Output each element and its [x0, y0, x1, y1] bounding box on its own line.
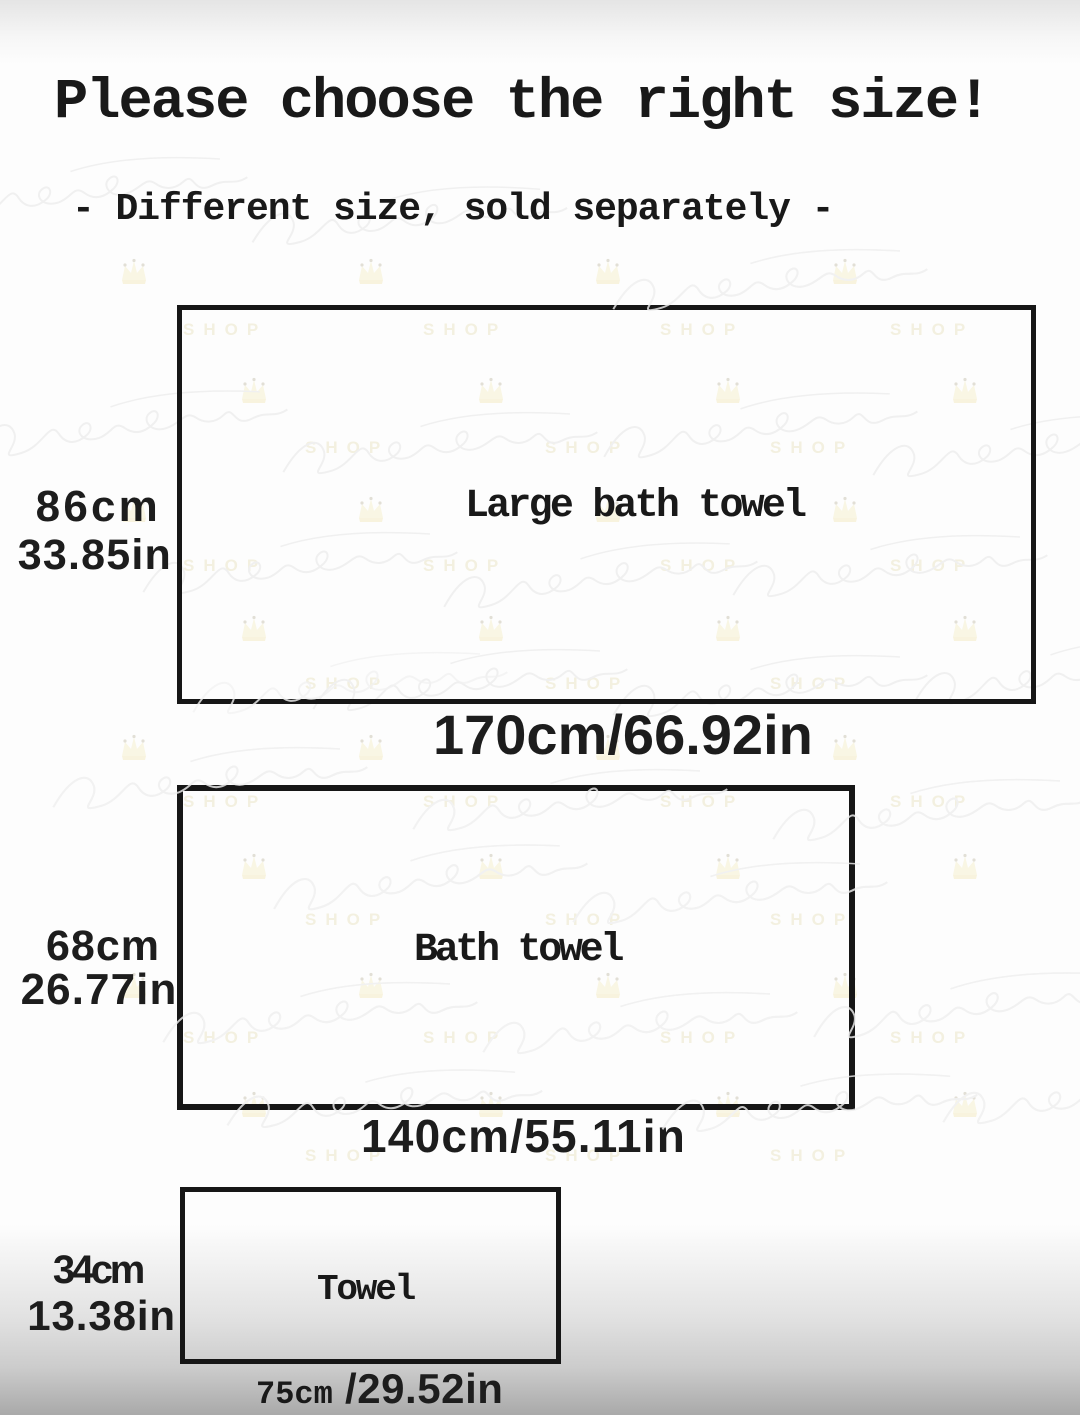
svg-text:75cm: 75cm: [256, 1376, 333, 1413]
svg-text:SHOP: SHOP: [545, 910, 629, 929]
svg-text:SHOP: SHOP: [305, 438, 389, 457]
svg-text:SHOP: SHOP: [890, 792, 974, 811]
svg-text:SHOP: SHOP: [660, 320, 744, 339]
svg-text:SHOP: SHOP: [545, 438, 629, 457]
svg-text:34cm: 34cm: [53, 1248, 144, 1292]
svg-text:/29.52in: /29.52in: [345, 1365, 504, 1412]
svg-text:- Different size, sold separat: - Different size, sold separately -: [72, 188, 833, 231]
svg-text:Large bath towel: Large bath towel: [465, 484, 806, 529]
svg-text:13.38in: 13.38in: [27, 1292, 176, 1339]
svg-text:170cm/66.92in: 170cm/66.92in: [433, 703, 813, 766]
svg-text:SHOP: SHOP: [183, 792, 267, 811]
svg-text:SHOP: SHOP: [183, 320, 267, 339]
svg-text:68cm: 68cm: [46, 922, 160, 970]
svg-text:Towel: Towel: [317, 1269, 416, 1310]
svg-text:SHOP: SHOP: [423, 1028, 507, 1047]
svg-text:86cm: 86cm: [36, 482, 161, 531]
svg-text:SHOP: SHOP: [770, 438, 854, 457]
svg-text:SHOP: SHOP: [890, 320, 974, 339]
svg-text:SHOP: SHOP: [770, 910, 854, 929]
svg-text:SHOP: SHOP: [770, 1146, 854, 1165]
svg-text:33.85in: 33.85in: [18, 531, 172, 579]
svg-text:SHOP: SHOP: [305, 910, 389, 929]
svg-text:SHOP: SHOP: [423, 320, 507, 339]
svg-text:SHOP: SHOP: [183, 556, 267, 575]
svg-text:SHOP: SHOP: [423, 556, 507, 575]
svg-text:SHOP: SHOP: [660, 1028, 744, 1047]
svg-text:26.77in: 26.77in: [21, 965, 178, 1014]
svg-text:SHOP: SHOP: [890, 1028, 974, 1047]
svg-text:140cm/55.11in: 140cm/55.11in: [361, 1110, 686, 1162]
svg-text:SHOP: SHOP: [183, 1028, 267, 1047]
svg-text:Bath towel: Bath towel: [414, 928, 623, 973]
svg-text:Please choose the right size!: Please choose the right size!: [54, 71, 989, 135]
